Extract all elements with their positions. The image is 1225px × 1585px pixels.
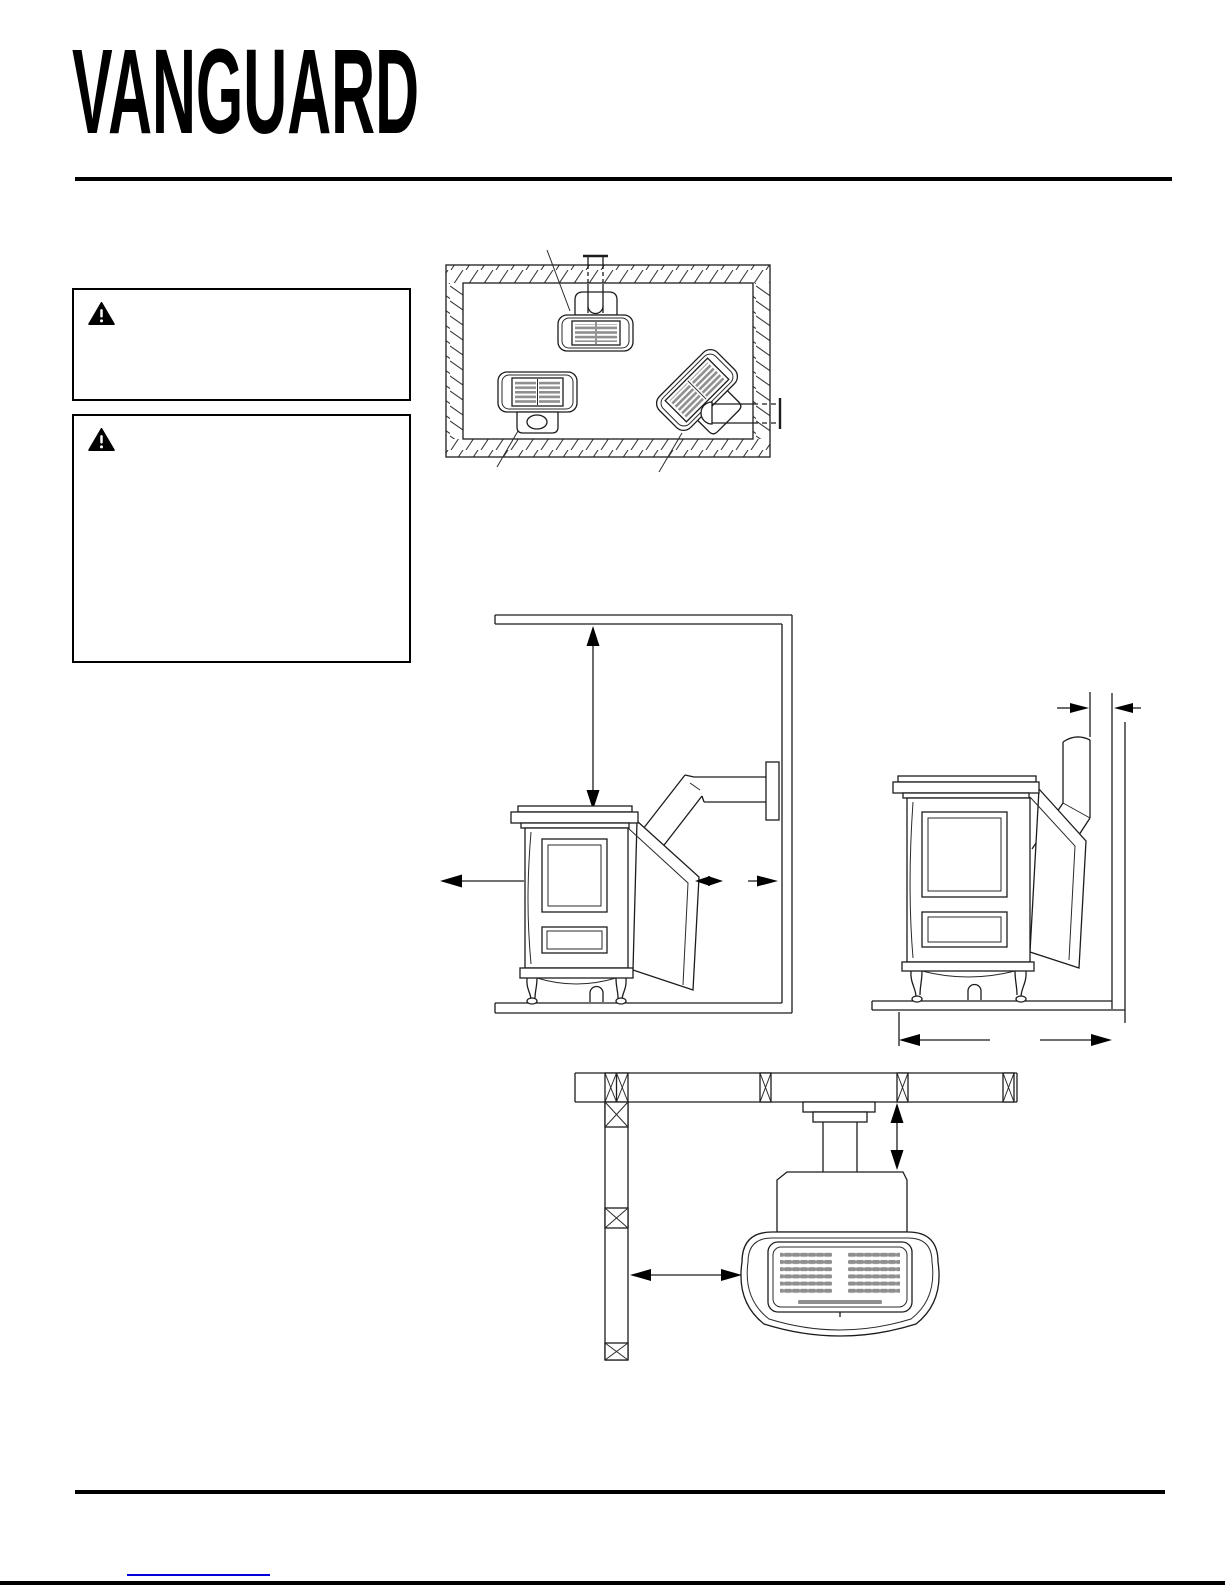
stud-box (605, 1073, 628, 1102)
warning-box-2 (72, 414, 411, 663)
stud-box (760, 1073, 771, 1102)
vanguard-logo: VANGUARD (72, 23, 419, 159)
warning-triangle-icon (88, 428, 115, 451)
stove-side-wall (498, 372, 577, 433)
logo-text: VANGUARD (72, 23, 419, 159)
stud-box (605, 1208, 628, 1228)
framed-wall-left (605, 1102, 628, 1360)
stud-box (605, 1102, 628, 1127)
page-bottom-edge (0, 1581, 1225, 1585)
footer-link[interactable] (127, 1562, 270, 1576)
ceiling-clearance-arrow (587, 626, 600, 810)
figure-vertical-vent-clearances (872, 692, 1141, 1046)
figure-top-view-clearances (575, 1073, 1017, 1360)
ceiling-clearance-arrow (891, 1103, 904, 1170)
stove-side-view (893, 776, 1086, 1002)
pipe-to-wall-dimension (1057, 692, 1141, 737)
stove-side-view (511, 762, 779, 1004)
stud-box (1003, 1073, 1014, 1102)
stove-top-view (741, 1172, 939, 1336)
stud-box (897, 1073, 908, 1102)
framed-wall-top (575, 1073, 1017, 1102)
footer-rule (75, 1490, 1165, 1494)
figure-room-plan-vent-options (446, 250, 780, 472)
warning-triangle-icon (88, 302, 115, 325)
manual-page: VANGUARD (0, 0, 1225, 1585)
stud-box (605, 1343, 628, 1360)
figure-side-clearances (440, 615, 792, 1013)
floor-dimension (899, 1012, 1112, 1046)
warning-box-1 (72, 288, 411, 401)
figures-canvas: VANGUARD (0, 0, 1225, 1585)
header-rule (75, 177, 1172, 181)
wall-clearance-arrow (630, 1269, 742, 1281)
